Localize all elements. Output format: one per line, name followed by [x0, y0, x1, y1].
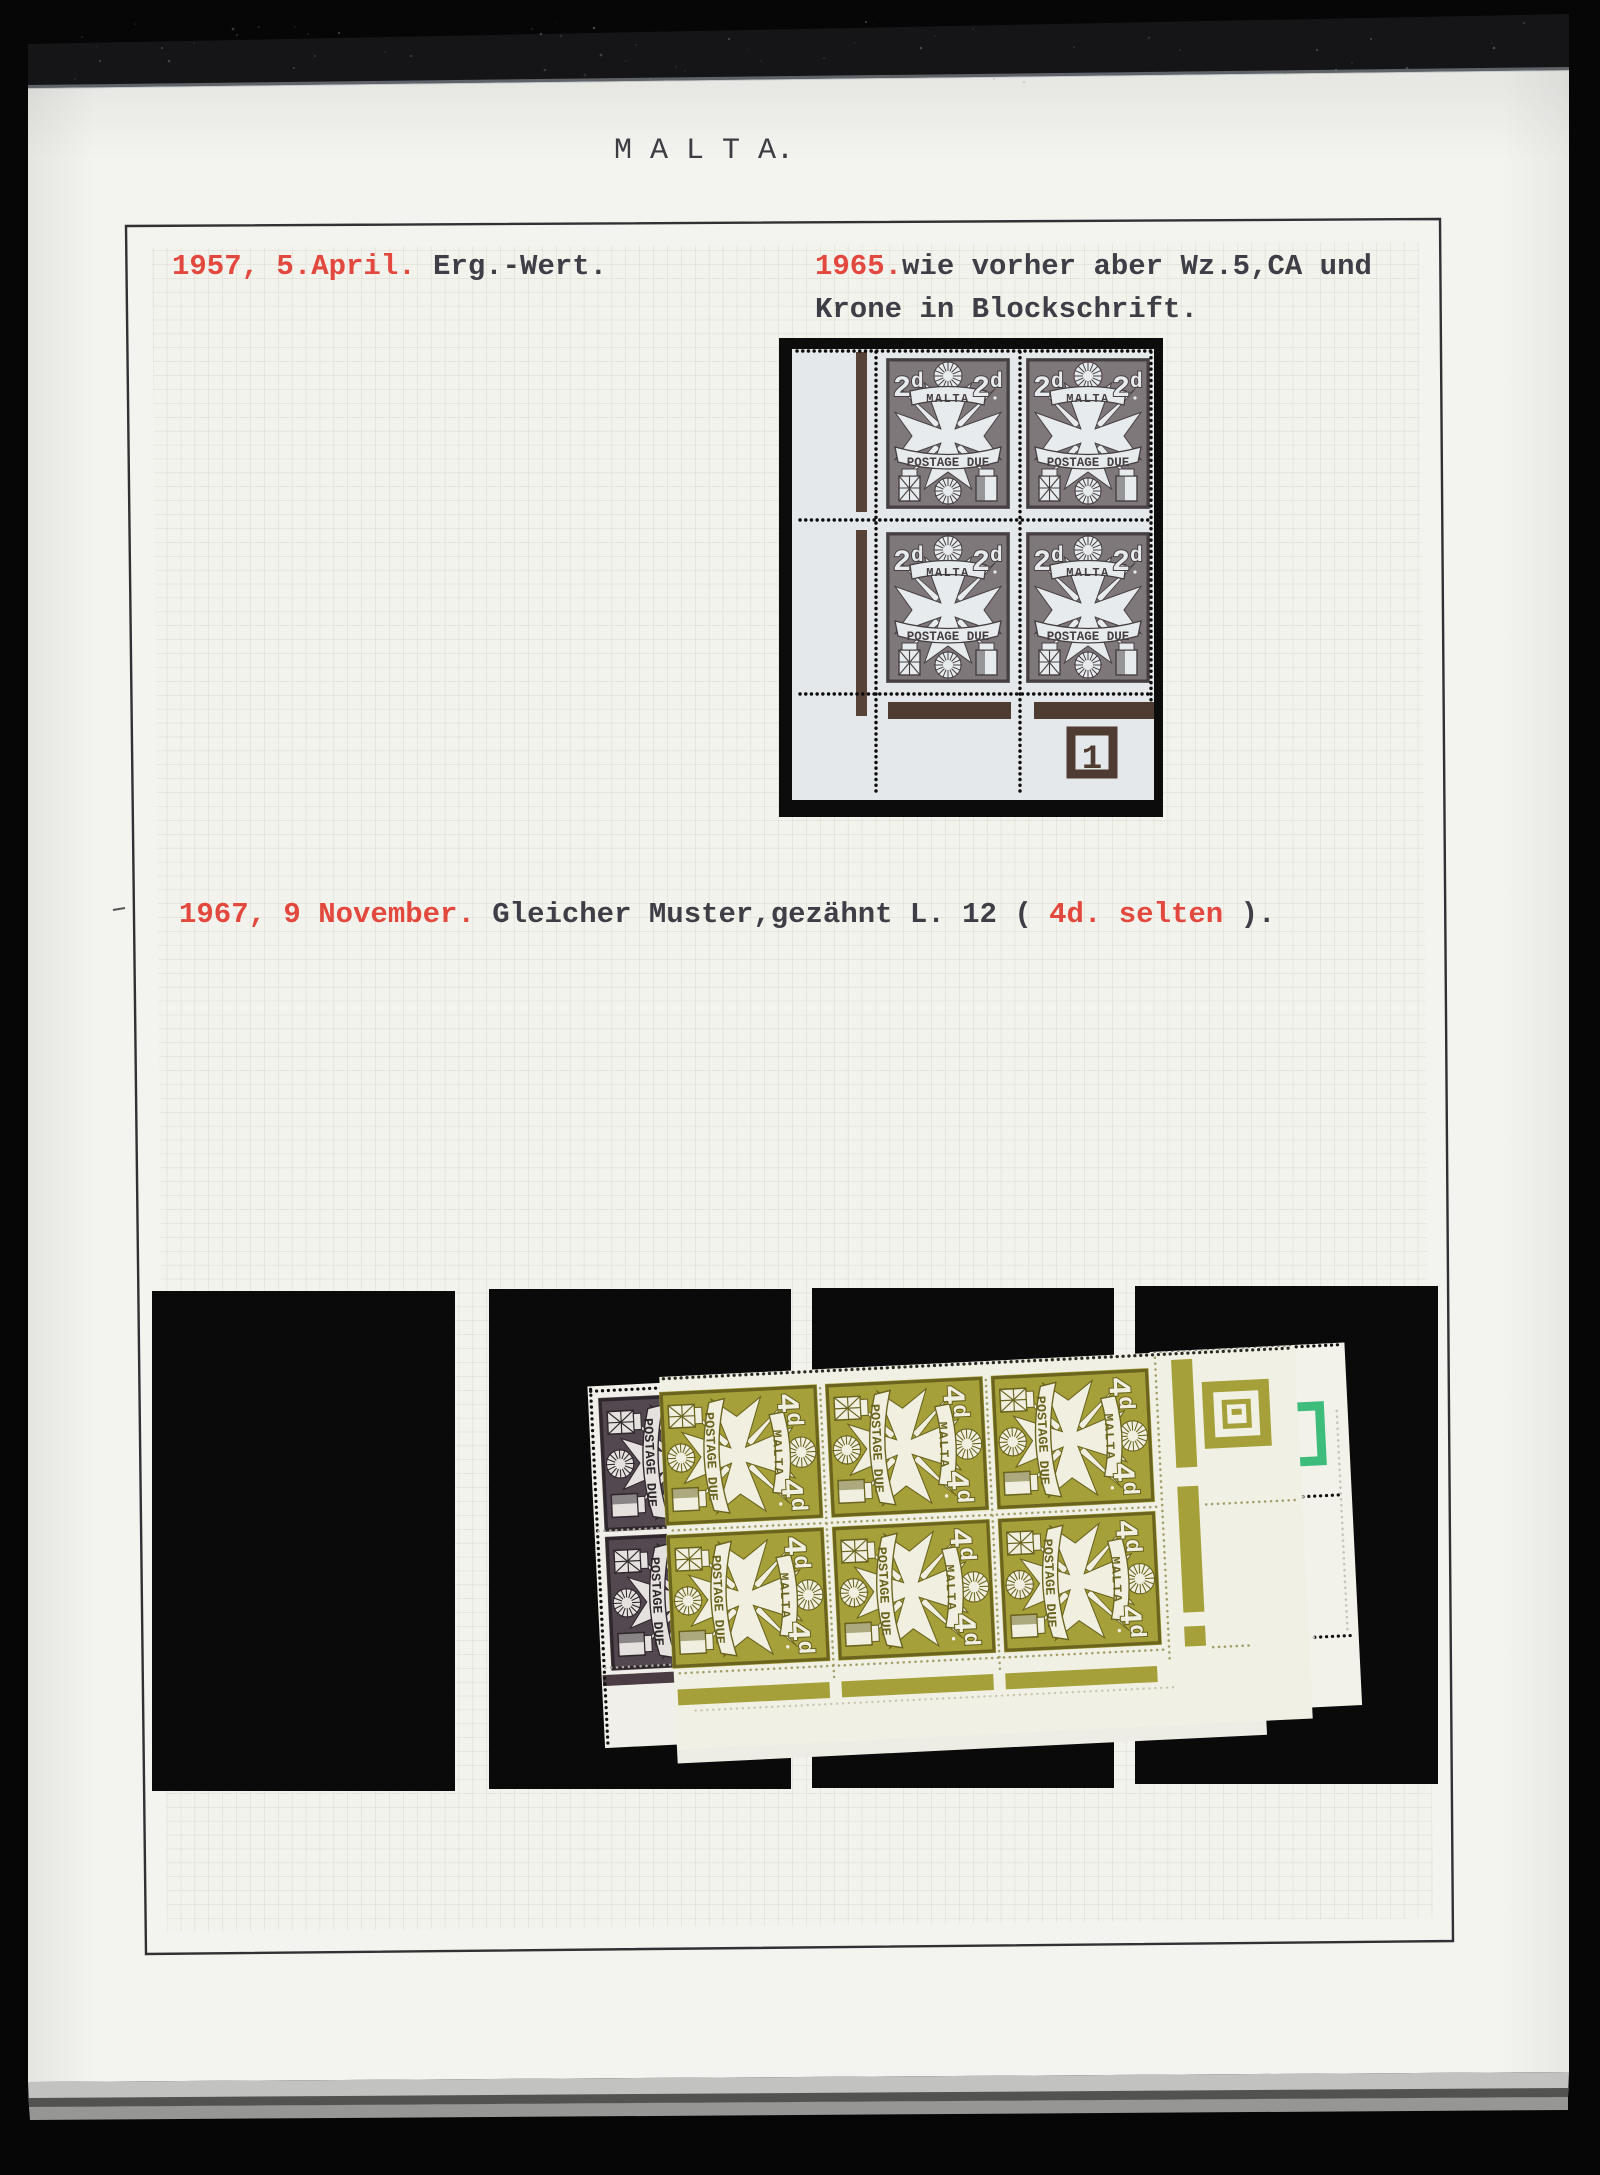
- svg-text:1967, 9 November. Gleicher Mus: 1967, 9 November. Gleicher Muster,gezähn…: [179, 898, 1275, 931]
- svg-text:Krone in Blockschrift.: Krone in Blockschrift.: [815, 293, 1198, 326]
- svg-text:1957, 5.April. Erg.-Wert.: 1957, 5.April. Erg.-Wert.: [172, 250, 607, 283]
- svg-text:1: 1: [1082, 741, 1102, 779]
- svg-text:1965.wie vorher aber Wz.5,CA u: 1965.wie vorher aber Wz.5,CA und: [815, 250, 1372, 283]
- svg-text:M A L T A.: M A L T A.: [614, 134, 794, 168]
